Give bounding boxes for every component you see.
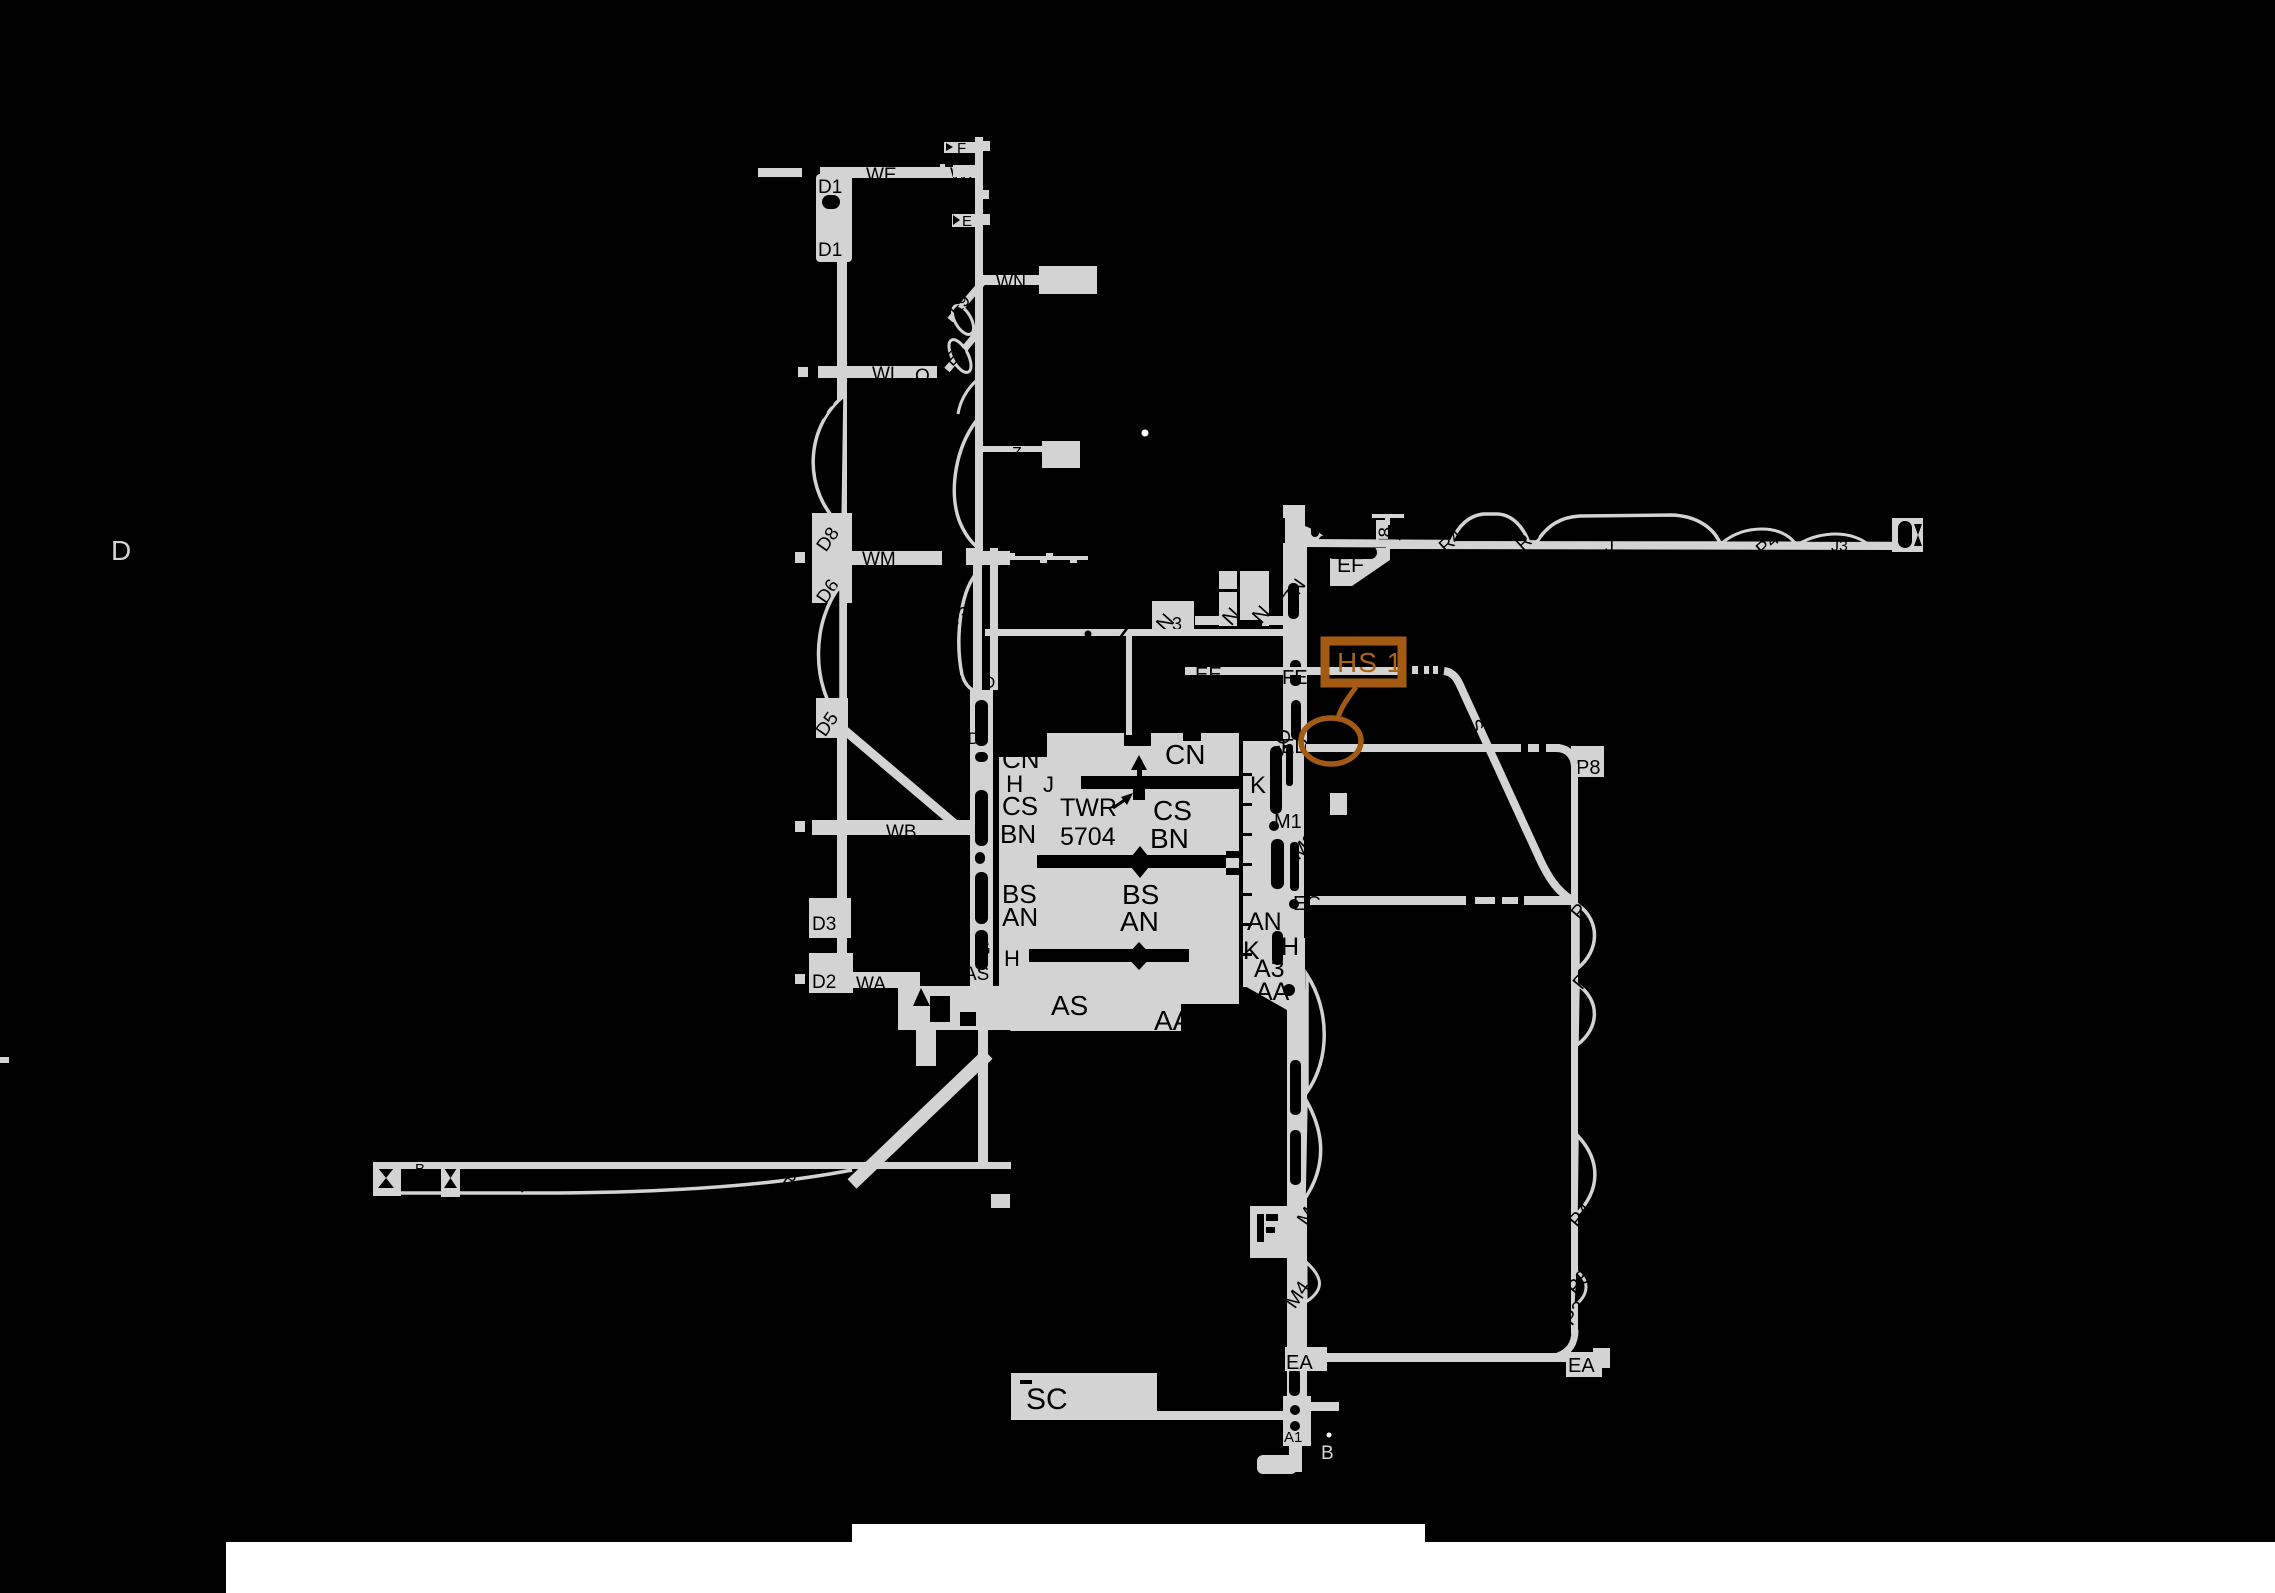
svg-text:P8: P8 (1576, 757, 1600, 779)
svg-text:EA: EA (1286, 1352, 1313, 1374)
svg-text:D1: D1 (818, 240, 842, 261)
svg-text:J: J (1043, 772, 1054, 797)
svg-text:Z: Z (1012, 445, 1022, 462)
svg-text:AN: AN (1247, 908, 1282, 936)
svg-text:CN: CN (1002, 744, 1040, 774)
svg-text:BN: BN (1150, 823, 1189, 854)
svg-text:BN: BN (1000, 819, 1036, 849)
svg-text:WN: WN (996, 272, 1026, 292)
svg-text:WB: WB (886, 822, 917, 843)
svg-text:K: K (1250, 772, 1266, 799)
svg-text:D1: D1 (818, 177, 842, 198)
svg-text:E: E (962, 213, 972, 230)
svg-text:D: D (111, 535, 131, 566)
svg-text:J: J (1605, 536, 1614, 556)
svg-text:HS 1: HS 1 (1337, 647, 1403, 678)
svg-text:EF: EF (1337, 554, 1364, 577)
svg-text:AS: AS (964, 964, 989, 985)
svg-text:WL: WL (872, 364, 901, 385)
svg-text:AA: AA (1154, 1005, 1192, 1036)
svg-text:CS: CS (1002, 791, 1038, 821)
svg-text:EE: EE (1195, 664, 1222, 686)
svg-text:TWR: TWR (1060, 794, 1117, 822)
svg-text:AS: AS (1051, 990, 1088, 1021)
svg-text:CN: CN (1165, 739, 1205, 770)
svg-text:J3: J3 (1831, 538, 1848, 555)
svg-text:EC: EC (1293, 893, 1321, 915)
svg-text:AN: AN (1002, 902, 1038, 932)
svg-text:F: F (957, 140, 966, 157)
svg-text:AN: AN (1120, 906, 1159, 937)
svg-text:EA: EA (1568, 1355, 1595, 1377)
svg-text:FE: FE (1282, 667, 1308, 689)
svg-text:D3: D3 (812, 914, 836, 935)
svg-text:Q: Q (915, 366, 930, 387)
svg-text:3: 3 (953, 671, 962, 690)
svg-text:WM: WM (862, 549, 896, 570)
svg-text:G: G (976, 939, 991, 960)
svg-text:WA: WA (856, 974, 886, 995)
svg-text:D: D (983, 673, 995, 692)
svg-text:B: B (1321, 1443, 1334, 1464)
svg-text:5704: 5704 (1060, 823, 1116, 851)
svg-text:WE: WE (866, 165, 897, 186)
svg-text:A1: A1 (1284, 1429, 1302, 1446)
svg-text:CS: CS (1153, 795, 1192, 826)
svg-text:2D: 2D (958, 729, 980, 748)
svg-text:H: H (1004, 946, 1020, 971)
svg-text:M1: M1 (1274, 811, 1302, 833)
svg-text:B: B (415, 1161, 425, 1178)
svg-text:B: B (950, 1181, 961, 1198)
svg-text:D2: D2 (812, 972, 836, 993)
svg-text:SC: SC (1026, 1383, 1068, 1416)
